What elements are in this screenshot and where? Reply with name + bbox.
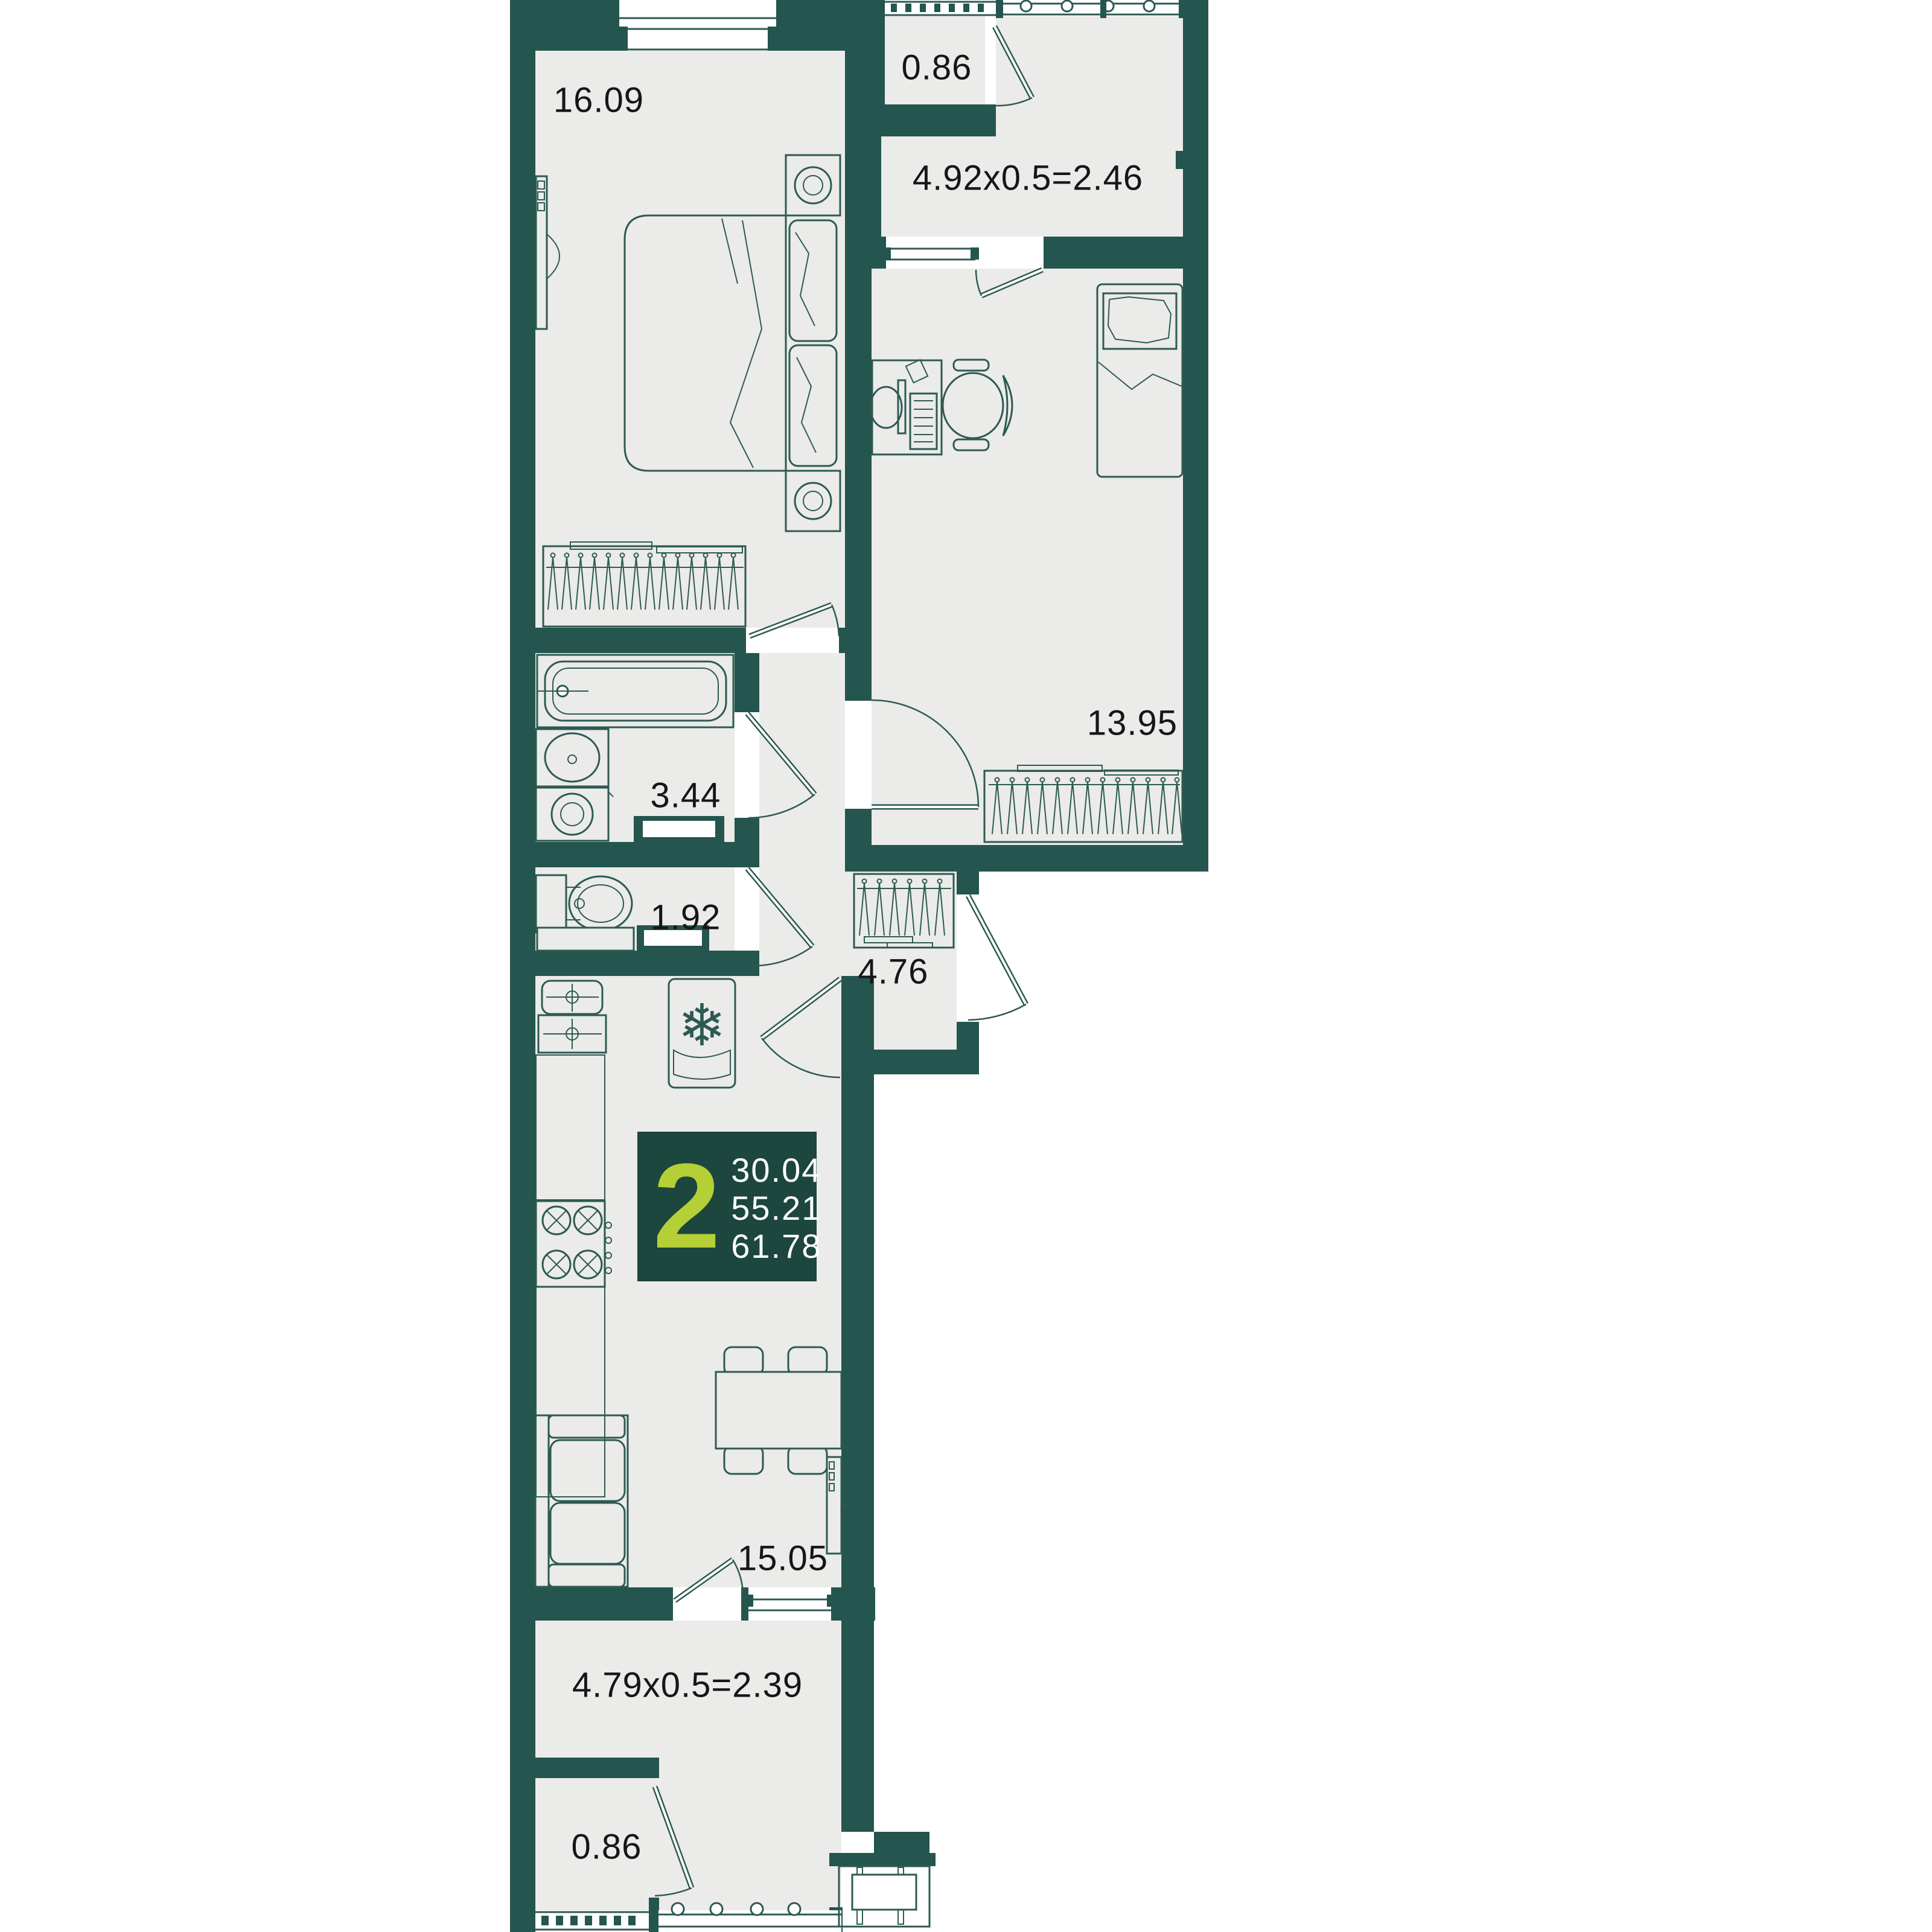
apartment-area: 55.21 — [731, 1189, 821, 1227]
area-values: 30.04 55.21 61.78 — [731, 1151, 821, 1265]
loggia-top-glazing — [885, 0, 1186, 18]
entry-door — [968, 896, 1026, 1020]
ac-unit — [839, 1866, 929, 1927]
bedroom2-window — [882, 237, 979, 269]
total-area: 61.78 — [731, 1227, 821, 1265]
room-label-loggia-bottom-box: 0.86 — [572, 1827, 642, 1867]
bedroom-window — [619, 0, 776, 51]
room-label-bathroom: 3.44 — [651, 776, 721, 816]
floor-plan-drawing: ❄ — [0, 0, 1932, 1932]
room-label-bedroom2: 13.95 — [1087, 703, 1178, 744]
rooms-count: 2 — [653, 1146, 720, 1267]
wc-counter — [537, 928, 634, 951]
living-area: 30.04 — [731, 1151, 821, 1189]
room-label-wc: 1.92 — [651, 897, 721, 938]
snowflake-icon: ❄ — [678, 992, 726, 1059]
room-label-hallway: 4.76 — [858, 952, 929, 992]
room-label-loggia-top: 4.92x0.5=2.46 — [913, 158, 1143, 199]
room-label-loggia-top-box: 0.86 — [902, 48, 972, 88]
room-label-bedroom: 16.09 — [553, 80, 644, 121]
room-label-kitchen-living: 15.05 — [738, 1538, 828, 1579]
shaft-top — [643, 821, 715, 837]
living-window — [745, 1587, 835, 1621]
floor-plan: ❄ — [0, 0, 1932, 1932]
room-label-loggia-bottom: 4.79x0.5=2.39 — [572, 1665, 803, 1706]
apartment-info-badge: 2 30.04 55.21 61.78 — [637, 1132, 817, 1281]
